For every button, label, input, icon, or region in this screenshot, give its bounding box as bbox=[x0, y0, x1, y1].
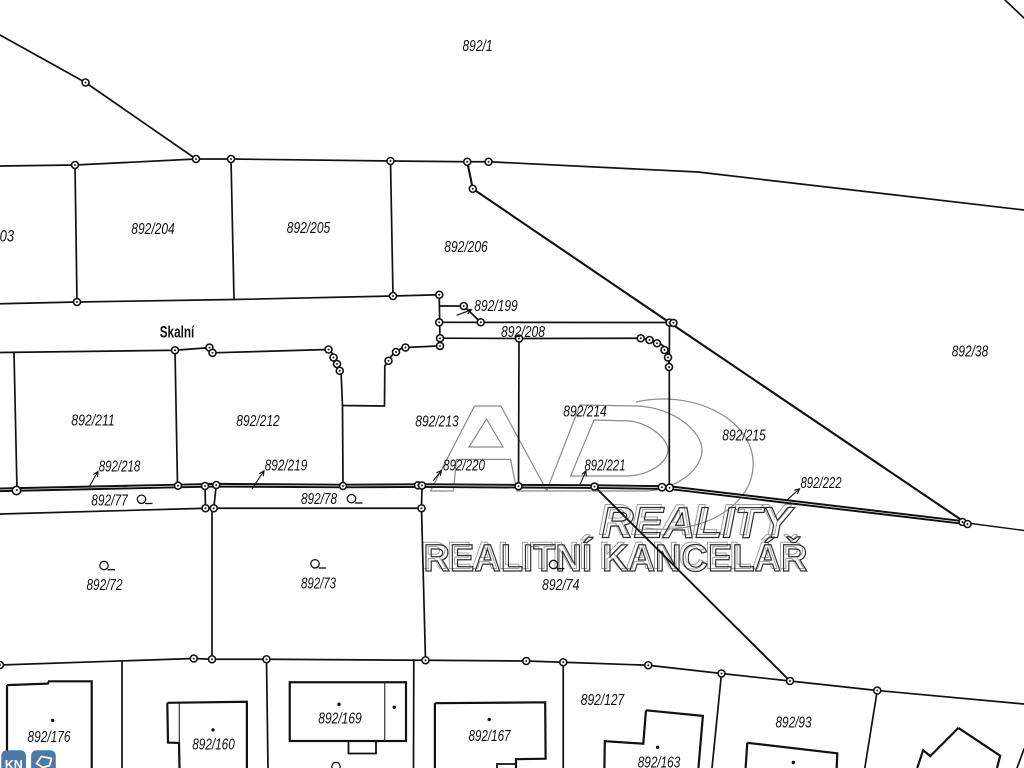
svg-text:892/212: 892/212 bbox=[236, 413, 280, 430]
svg-text:892/199: 892/199 bbox=[474, 298, 518, 315]
svg-text:892/221: 892/221 bbox=[585, 457, 626, 474]
svg-text:892/222: 892/222 bbox=[801, 475, 842, 492]
svg-text:892/169: 892/169 bbox=[318, 711, 362, 728]
svg-text:892/213: 892/213 bbox=[415, 414, 459, 431]
svg-text:892/127: 892/127 bbox=[581, 692, 626, 709]
svg-text:892/208: 892/208 bbox=[501, 324, 545, 341]
svg-text:892/204: 892/204 bbox=[131, 221, 175, 238]
svg-text:892/219: 892/219 bbox=[265, 457, 308, 474]
svg-text:Skalní: Skalní bbox=[160, 324, 196, 342]
svg-text:892/203: 892/203 bbox=[0, 227, 15, 246]
svg-text:892/93: 892/93 bbox=[776, 714, 812, 731]
svg-text:892/214: 892/214 bbox=[563, 404, 607, 421]
svg-text:KN: KN bbox=[5, 758, 23, 768]
svg-text:892/220: 892/220 bbox=[443, 458, 485, 475]
svg-text:892/78: 892/78 bbox=[301, 491, 337, 508]
svg-text:892/176: 892/176 bbox=[28, 729, 71, 746]
svg-text:892/211: 892/211 bbox=[71, 412, 115, 429]
svg-text:REALITNÍ KANCELÁŘ: REALITNÍ KANCELÁŘ bbox=[424, 536, 808, 580]
svg-text:892/206: 892/206 bbox=[444, 239, 488, 256]
svg-text:892/73: 892/73 bbox=[301, 576, 336, 593]
svg-text:892/77: 892/77 bbox=[91, 492, 129, 509]
svg-text:892/218: 892/218 bbox=[99, 459, 141, 476]
svg-text:892/160: 892/160 bbox=[192, 737, 235, 754]
svg-text:892/72: 892/72 bbox=[87, 577, 123, 594]
svg-text:892/1: 892/1 bbox=[463, 38, 493, 55]
svg-text:892/167: 892/167 bbox=[469, 728, 512, 745]
svg-text:892/215: 892/215 bbox=[722, 427, 766, 444]
svg-text:892/163: 892/163 bbox=[638, 755, 681, 768]
svg-text:892/74: 892/74 bbox=[542, 577, 580, 594]
svg-text:892/38: 892/38 bbox=[952, 344, 989, 361]
svg-text:892/205: 892/205 bbox=[287, 220, 331, 237]
